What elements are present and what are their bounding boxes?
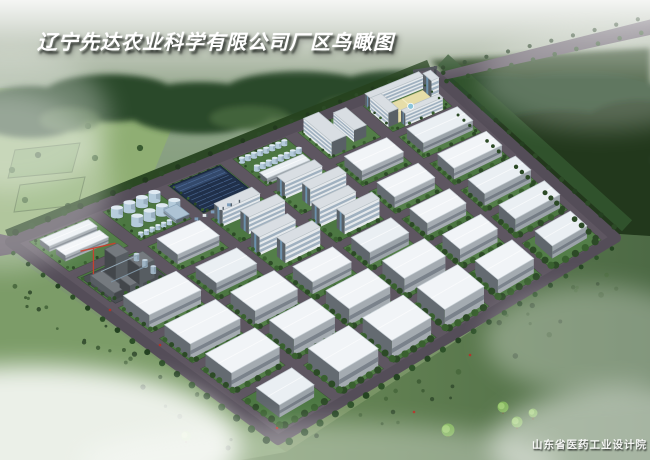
rendering-title: 辽宁先达农业科学有限公司厂区鸟瞰图 bbox=[37, 26, 617, 55]
industrial-park-scene bbox=[0, 0, 650, 460]
design-institute-watermark: 山东省医药工业设计院 bbox=[532, 437, 647, 452]
birdseye-rendering: 辽宁先达农业科学有限公司厂区鸟瞰图 山东省医药工业设计院 bbox=[0, 0, 650, 460]
